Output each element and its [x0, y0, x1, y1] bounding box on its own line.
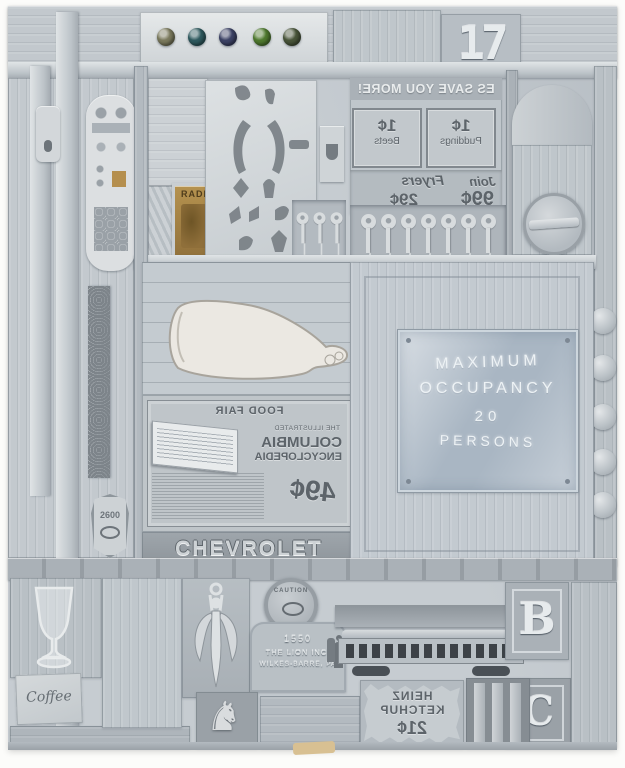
train-windows [346, 644, 516, 658]
slat-group-panel [466, 678, 530, 748]
item-1: Puddings [428, 136, 494, 147]
slat [510, 683, 521, 743]
caution-center-oval [282, 602, 304, 616]
key-icon [330, 212, 342, 246]
slat [492, 683, 503, 743]
heinz-price: 21¢ [360, 718, 464, 739]
plaque-line-3: WILKES-BARRE, PA [250, 661, 346, 668]
notch-1 [326, 144, 338, 160]
center-filler-top [148, 78, 208, 186]
key-icon [421, 214, 436, 256]
occupancy-outer-panel: MAXIMUM OCCUPANCY 20 PERSONS [350, 262, 594, 566]
remote-control [86, 95, 136, 271]
keyhole [44, 140, 52, 152]
letter-b-frame: B [512, 589, 562, 653]
encyclopedia-mirrored-face: FOOD FAIR THE ILLUSTRATED COLUMBIA ENCYC… [147, 400, 351, 527]
cap-bar [529, 217, 580, 229]
bottom-band-slat [8, 558, 617, 580]
encyclopedia-price: 49¢ [288, 473, 338, 510]
coffee-label: Coffee [16, 688, 83, 706]
bottom-center-boards [260, 696, 360, 748]
train-body [338, 638, 524, 664]
grocery-headline: ES SAVE YOU MORE! [350, 78, 502, 100]
price-1: 1¢ [428, 116, 494, 136]
angel-figure [188, 581, 244, 695]
grocery-line1: Join [469, 174, 496, 189]
caution-label: CAUTION [268, 588, 314, 594]
heinz-line-2: KETCHUP [360, 703, 464, 717]
keys-small-block [292, 200, 346, 262]
encyclopedia-plate: FOOD FAIR THE ILLUSTRATED COLUMBIA ENCYC… [142, 395, 356, 532]
grocery-price-box-1: 1¢ Puddings [426, 108, 496, 168]
heinz-line-1: HEINZ [360, 689, 464, 703]
marble-indigo [219, 28, 237, 46]
item-2: Beets [354, 136, 420, 147]
knight-panel: ♞ [196, 692, 258, 748]
round-cap-disc [523, 193, 585, 255]
screw-icon [565, 338, 570, 343]
arch-block-top [512, 85, 592, 145]
train-wheel-truck [352, 666, 390, 676]
dotted-strip [88, 286, 110, 478]
letter-b-block: B [505, 582, 569, 660]
key-icon [481, 214, 496, 256]
train-wheel-truck [472, 666, 510, 676]
trophy-cup [28, 584, 80, 674]
bottom-left-filler [102, 578, 182, 728]
latch-plate [36, 106, 60, 162]
top-filler-block [333, 10, 441, 64]
grocery-plate: ES SAVE YOU MORE! 1¢ Puddings 1¢ Beets J… [350, 78, 502, 214]
occupancy-line-4: PERSONS [400, 431, 576, 452]
assemblage-artwork: 17 2600 RADIO [8, 6, 617, 750]
grocery-line2: Fryers [401, 172, 444, 188]
marble-darkgreen [283, 28, 301, 46]
screw-icon [406, 338, 411, 343]
encyclopedia-title-main: COLUMBIA [261, 434, 342, 451]
badge-2600: 2600 [91, 494, 129, 558]
screw-icon [565, 479, 570, 484]
screw-icon [406, 479, 411, 484]
coffee-panel: Coffee [15, 673, 83, 725]
key-icon [313, 212, 325, 246]
book-pages [157, 428, 233, 466]
encyclopedia-title-sub: ENCYCLOPEDIA [255, 451, 342, 463]
train-roof [342, 630, 520, 638]
trophy-panel [10, 578, 102, 678]
occupancy-line-1: MAXIMUM [400, 351, 577, 375]
marble-teal [188, 28, 206, 46]
letter-b: B [518, 594, 555, 645]
slat [474, 683, 485, 743]
tiny-figure-2 [327, 638, 335, 662]
grocery-plate-mirrored-face: ES SAVE YOU MORE! 1¢ Puddings 1¢ Beets J… [350, 78, 502, 214]
marble-olive [157, 28, 175, 46]
grocery-price-box-2: 1¢ Beets [352, 108, 422, 168]
badge-number: 2600 [91, 510, 129, 520]
encyclopedia-title-small: THE ILLUSTRATED [274, 425, 340, 432]
radio-tin-figure [181, 204, 207, 248]
remote-mid-buttons [94, 161, 128, 201]
remote-keypad [94, 207, 128, 251]
marble-green [253, 28, 271, 46]
marble-panel [140, 12, 328, 64]
key-icon [361, 214, 376, 256]
badge-oval [100, 526, 120, 539]
occupancy-line-2: OCCUPANCY [400, 380, 576, 398]
dotted-strip-holes [88, 286, 110, 478]
train-car [338, 630, 524, 678]
occupancy-line-3: 20 [400, 408, 576, 425]
key-icon [461, 214, 476, 256]
heinz-plate: HEINZ KETCHUP 21¢ [360, 680, 464, 748]
key-icon [381, 214, 396, 256]
chevrolet-label: CHEVROLET [175, 537, 323, 560]
key-icon [296, 212, 308, 246]
notched-tab-1 [320, 126, 344, 182]
train-shelf [335, 605, 531, 627]
occupancy-sign: MAXIMUM OCCUPANCY 20 PERSONS [398, 330, 578, 492]
paint-chip [293, 741, 336, 755]
key-icon [401, 214, 416, 256]
price-2: 1¢ [354, 116, 420, 136]
encyclopedia-header: FOOD FAIR [148, 405, 350, 417]
top-horizontal-slat [8, 62, 617, 78]
horse-knight-shape: ♞ [206, 694, 242, 740]
bottom-right-board [571, 582, 617, 748]
book-illustration [152, 420, 238, 473]
plaster-foot [162, 298, 352, 390]
angel-panel [182, 578, 250, 698]
heinz-mirrored-face: HEINZ KETCHUP 21¢ [360, 680, 464, 748]
key-icon [441, 214, 456, 256]
fine-print-texture [152, 473, 264, 521]
foot-panel [142, 262, 356, 395]
remote-top-buttons [92, 105, 130, 155]
